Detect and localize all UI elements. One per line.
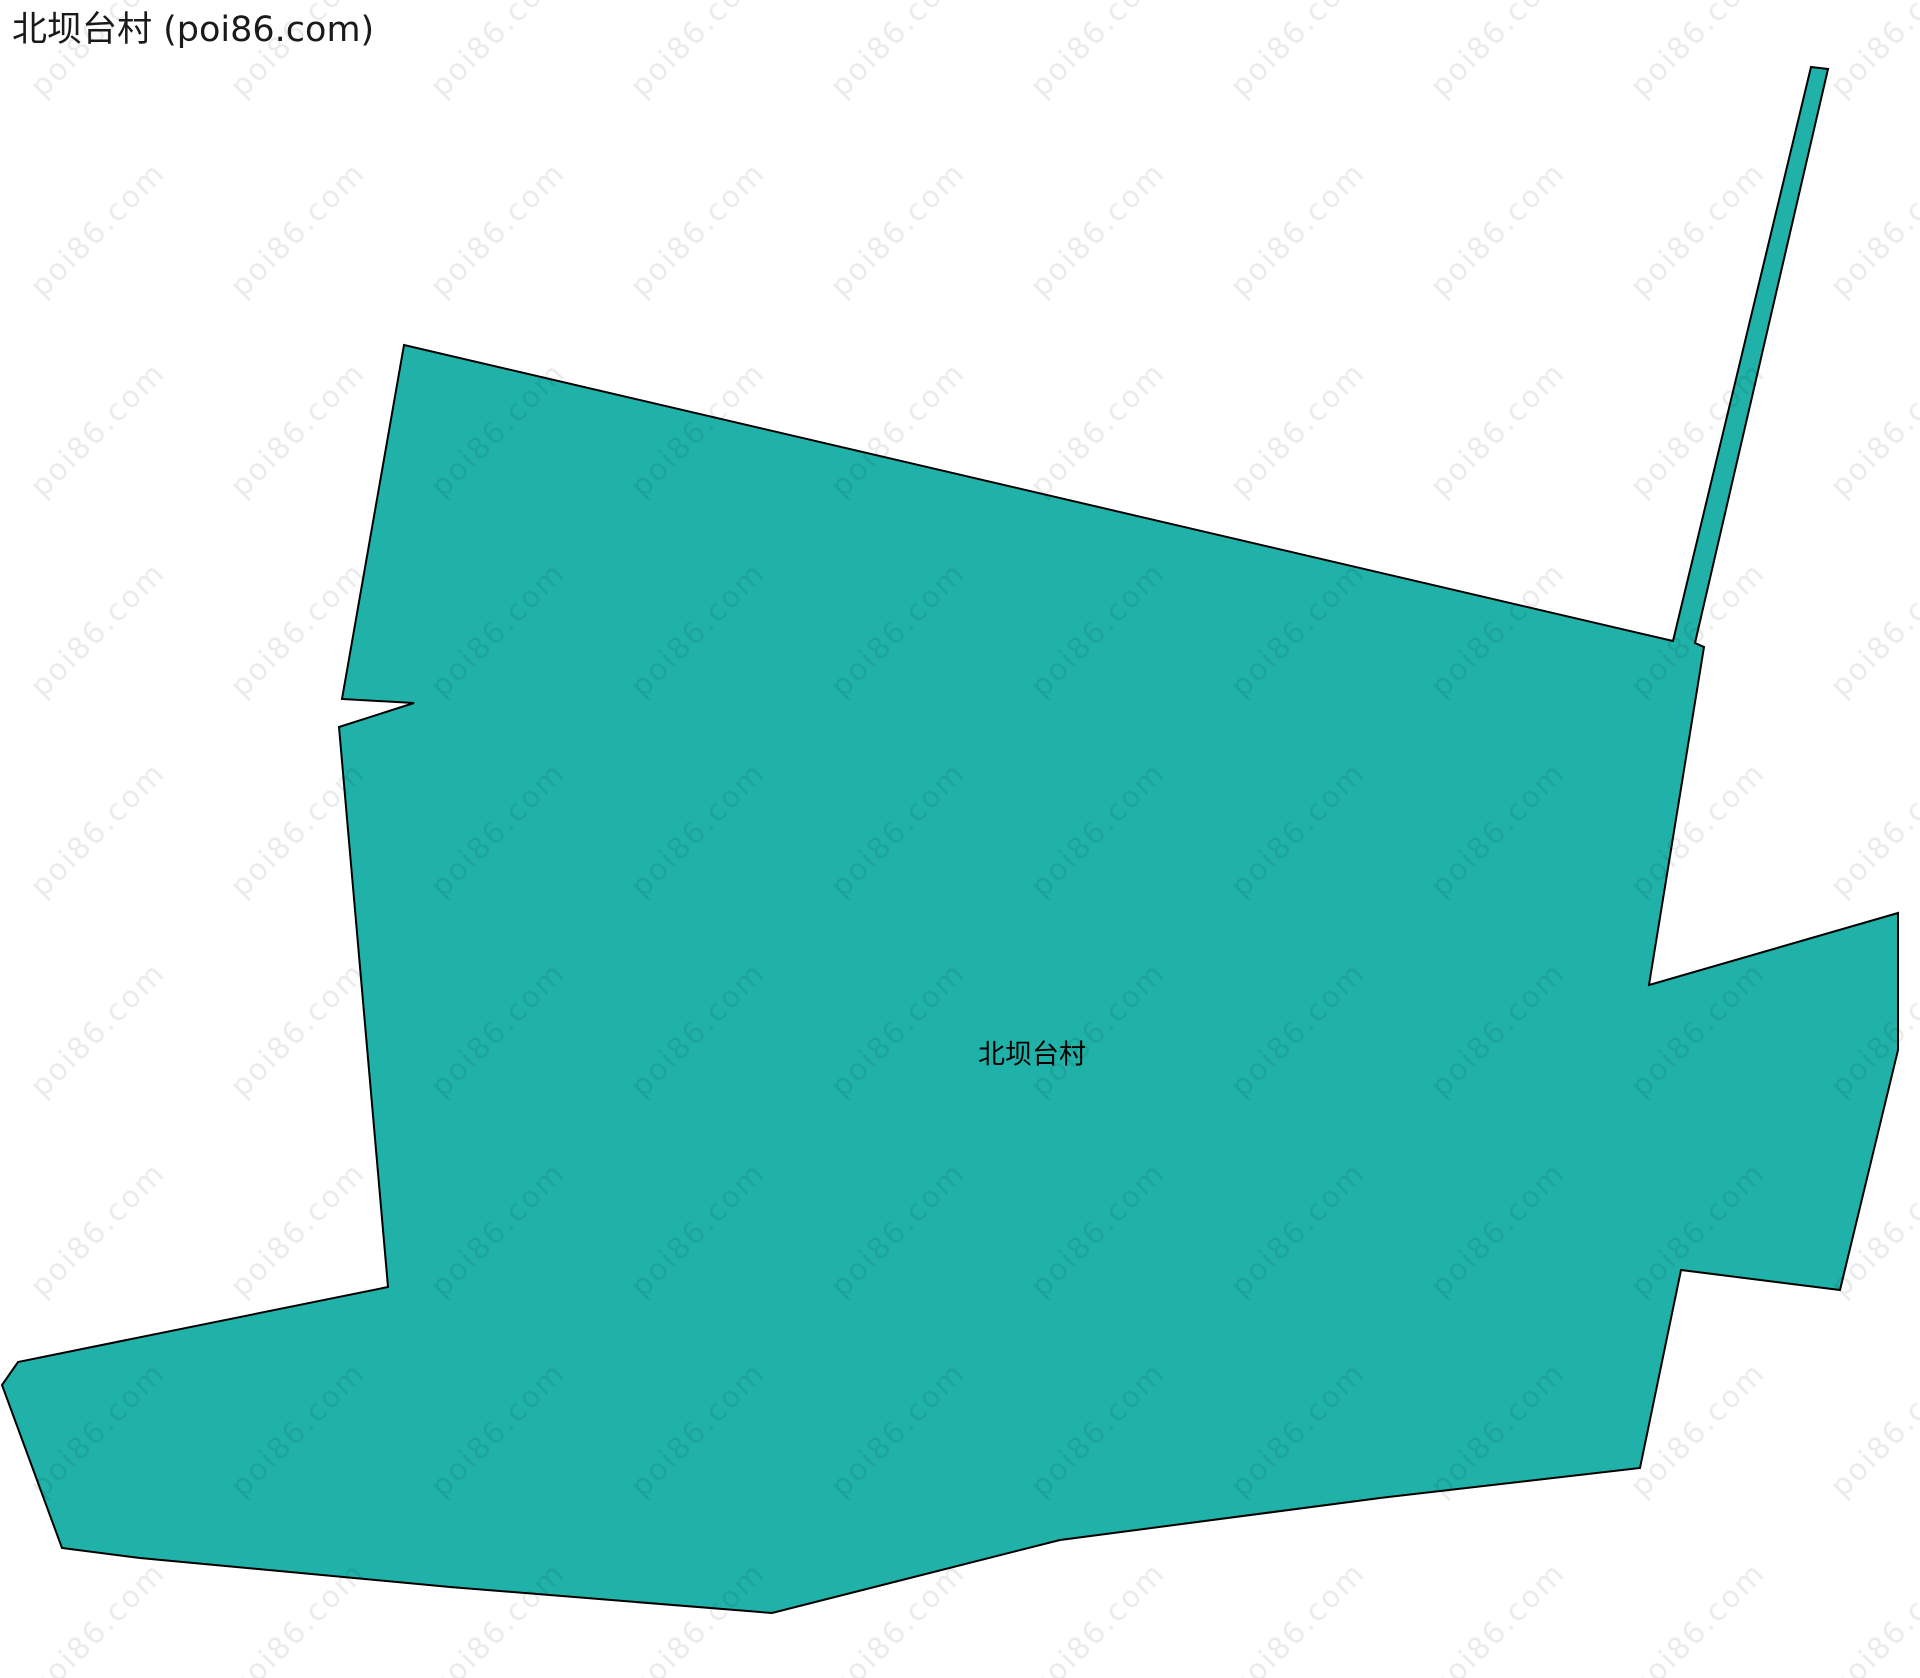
region-polygon <box>2 67 1898 1613</box>
page-title: 北坝台村 (poi86.com) <box>12 8 374 54</box>
region-map-svg <box>0 0 1920 1678</box>
region-label: 北坝台村 <box>978 1033 1086 1072</box>
map-canvas: poi86.compoi86.compoi86.compoi86.compoi8… <box>0 0 1920 1678</box>
